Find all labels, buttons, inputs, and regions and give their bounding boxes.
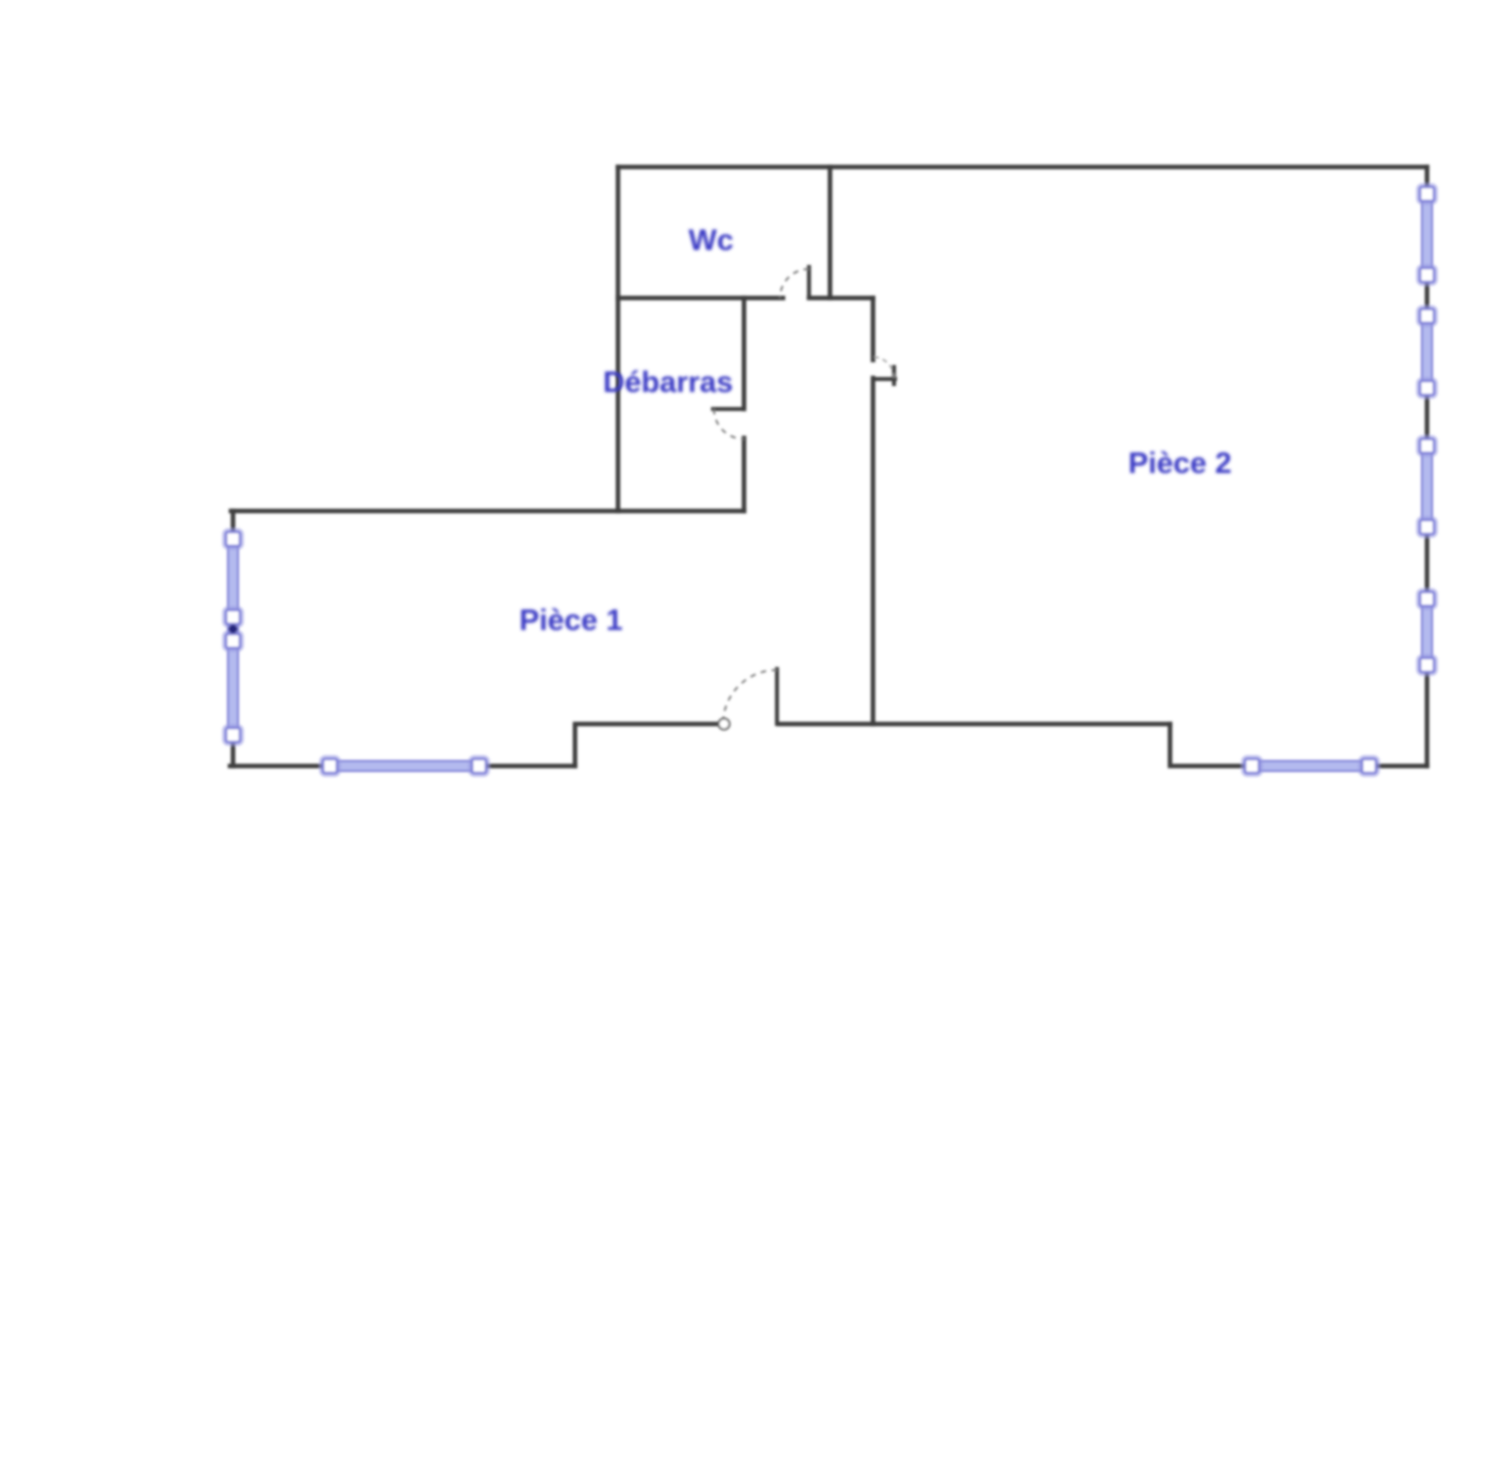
svg-text:Wc: Wc <box>689 224 734 257</box>
svg-text:Débarras: Débarras <box>603 366 733 399</box>
svg-text:Pièce 2: Pièce 2 <box>1128 447 1231 480</box>
svg-text:Pièce 1: Pièce 1 <box>519 604 622 637</box>
